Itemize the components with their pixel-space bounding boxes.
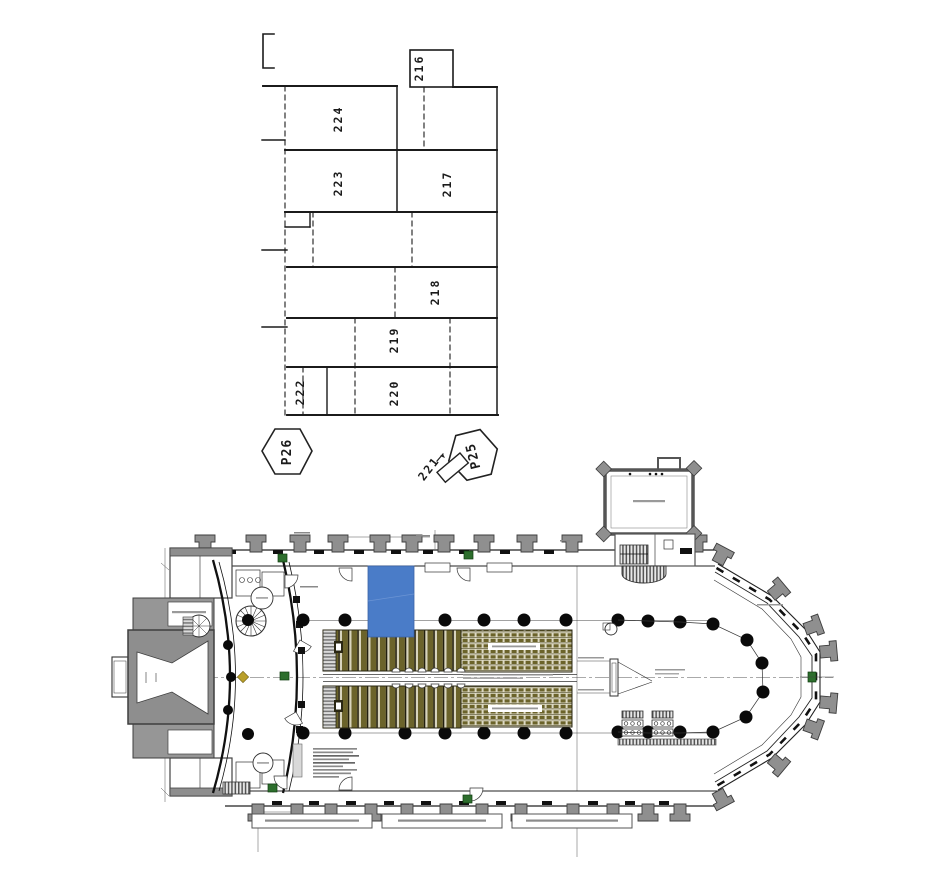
parcel-labels: 216 224 223 217 218 219 220 222: [293, 55, 454, 407]
apse: [618, 543, 838, 811]
parcel-label-224: 224: [331, 106, 345, 133]
diamond-symbol: [237, 671, 248, 682]
pews: [323, 630, 577, 728]
marker-p26: P26: [262, 429, 312, 474]
cadastral-map: 216 224 223 217 218 219 220 222 P26 P25 …: [262, 34, 503, 483]
parcel-label-218: 218: [428, 279, 442, 306]
narthex-curve: [213, 560, 483, 801]
parcel-label-221: 221: [415, 454, 443, 484]
parcel-label-220: 220: [387, 380, 401, 407]
caption-box-2: [382, 814, 502, 828]
parcel-boundary-lines: [262, 34, 498, 415]
caption-boxes: [252, 814, 632, 828]
parcel-label-217: 217: [440, 171, 454, 198]
parcel-label-216: 216: [412, 55, 426, 82]
parcel-label-219: 219: [387, 327, 401, 354]
caption-box-1: [252, 814, 372, 828]
caption-box-3: [512, 814, 632, 828]
parcel-label-222: 222: [293, 379, 307, 406]
highlight-zone[interactable]: [368, 566, 414, 637]
spec-paragraph: [313, 748, 359, 778]
parcel-label-223: 223: [331, 170, 345, 197]
church-floor-plan: [112, 458, 838, 857]
plan-sheet: 216 224 223 217 218 219 220 222 P26 P25 …: [0, 0, 946, 871]
marker-p26-label: P26: [280, 439, 295, 465]
parcel-221-flag: 221: [415, 453, 468, 483]
